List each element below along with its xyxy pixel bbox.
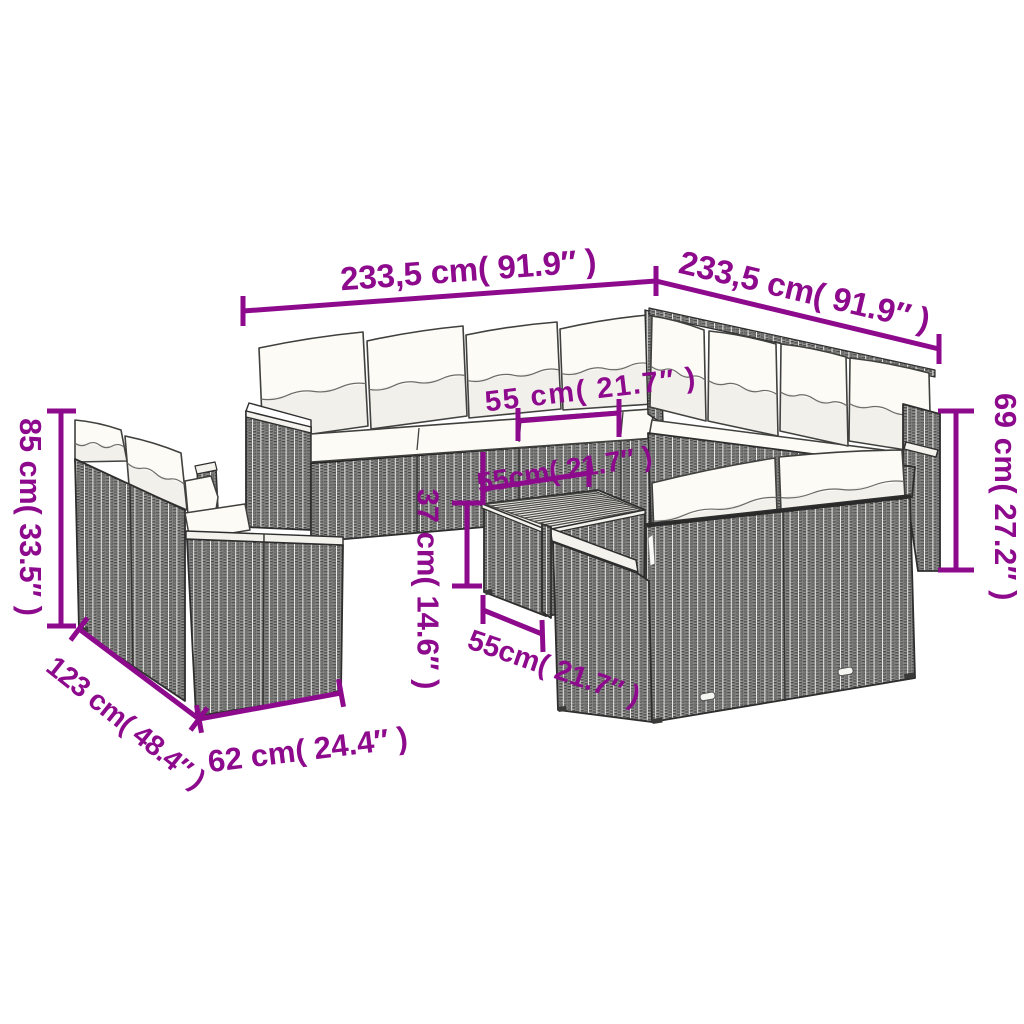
svg-text:69 cm( 27.2″ ): 69 cm( 27.2″ ) xyxy=(988,393,1023,601)
svg-text:37 cm( 14.6″ ): 37 cm( 14.6″ ) xyxy=(411,489,446,690)
svg-text:85 cm( 33.5″ ): 85 cm( 33.5″ ) xyxy=(13,418,47,616)
svg-text:62 cm( 24.4″ ): 62 cm( 24.4″ ) xyxy=(206,720,410,779)
